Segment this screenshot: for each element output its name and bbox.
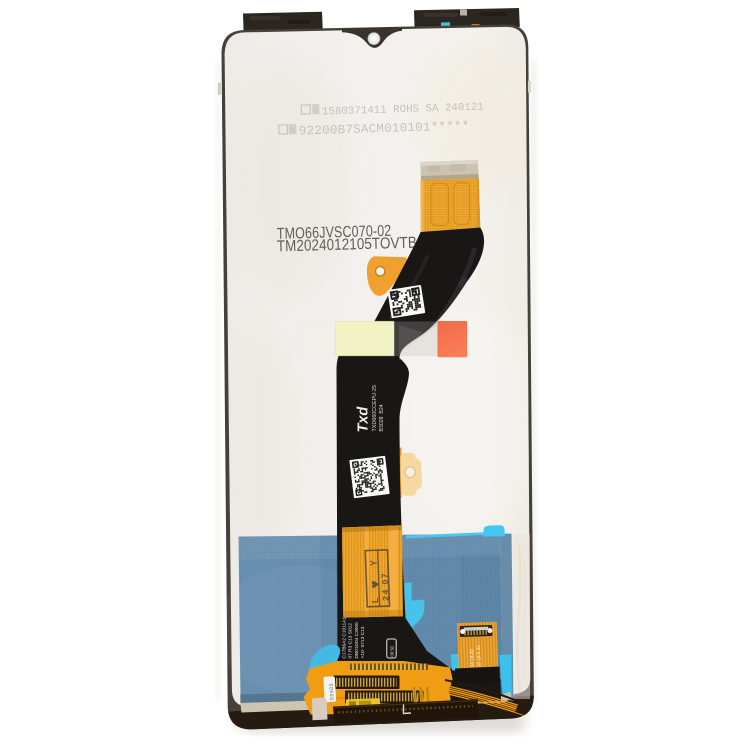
svg-text:DB01D04 C3006: DB01D04 C3006: [354, 622, 360, 659]
svg-text:B3028 B24: B3028 B24: [379, 404, 385, 431]
svg-text:+10- 0713 C13: +10- 0713 C13: [360, 626, 366, 658]
svg-text:08 50: 08 50: [390, 645, 395, 656]
svg-text:Y: Y: [369, 560, 379, 566]
svg-text:50505: 50505: [329, 682, 336, 700]
svg-text:C17B6A2 C1011A1: C17B6A2 C1011A1: [342, 617, 348, 659]
svg-text:07 R3 C13 S012: 07 R3 C13 S012: [348, 623, 354, 659]
svg-text:33 18 5 32: 33 18 5 32: [476, 645, 482, 667]
svg-text:L: L: [370, 597, 380, 603]
svg-text:24 07: 24 07: [380, 572, 391, 601]
svg-text:TXD660CCEPU-25: TXD660CCEPU-25: [372, 385, 378, 431]
svg-text:34 18:30: 34 18:30: [469, 649, 475, 667]
svg-text:Txd: Txd: [356, 406, 372, 433]
